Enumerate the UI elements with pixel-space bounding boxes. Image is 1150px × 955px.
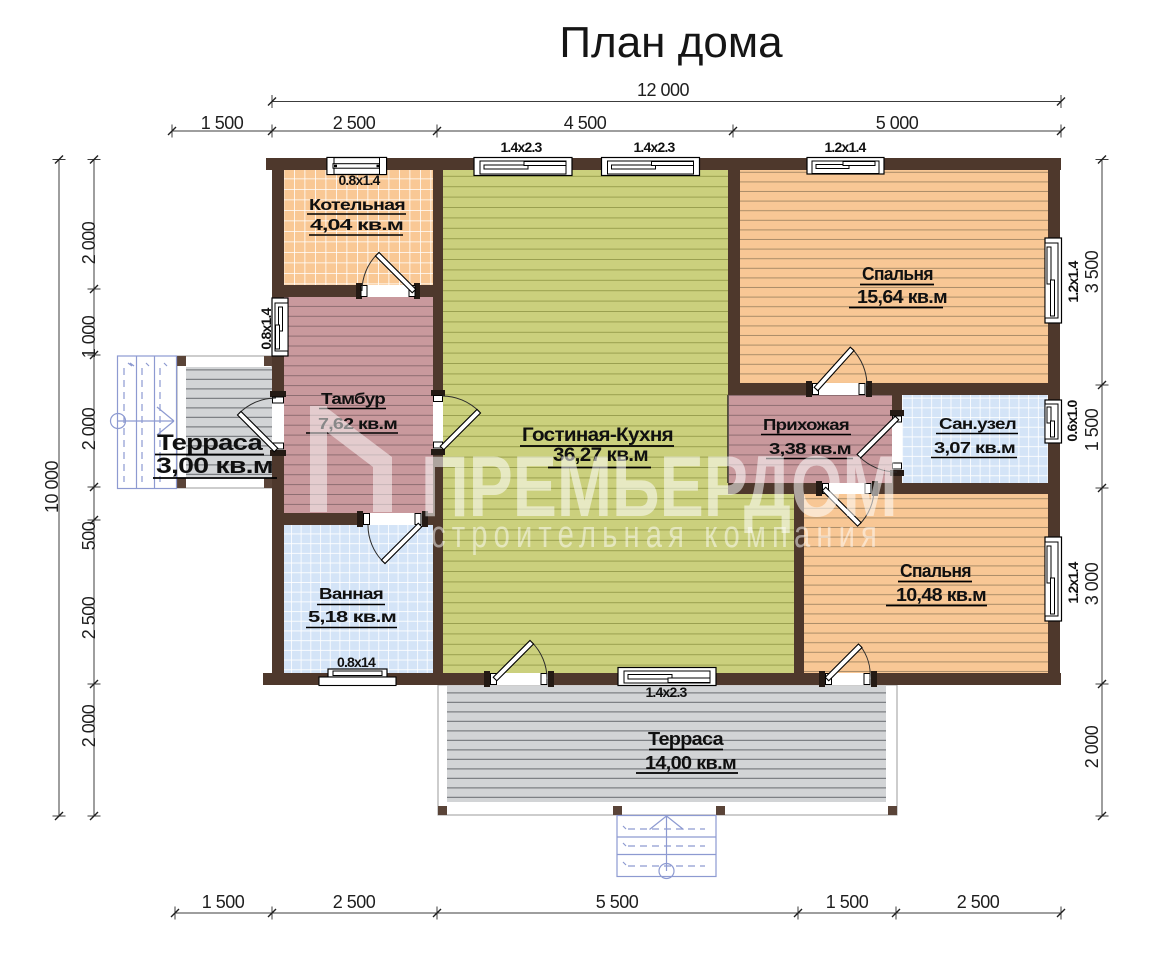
svg-text:2 500: 2 500 [79,596,99,639]
svg-text:строительная компания: строительная компания [431,514,883,556]
svg-text:Спальня: Спальня [862,264,933,284]
svg-text:0.8x14: 0.8x14 [337,654,376,670]
svg-text:10,48 кв.м: 10,48 кв.м [896,585,986,605]
svg-text:1 000: 1 000 [79,315,99,358]
svg-text:2 000: 2 000 [79,407,99,450]
svg-text:10 000: 10 000 [42,460,62,513]
svg-text:3 500: 3 500 [1082,250,1102,293]
svg-text:3,07 кв.м: 3,07 кв.м [934,440,1015,457]
svg-text:План дома: План дома [559,18,783,67]
svg-text:3 000: 3 000 [1082,562,1102,605]
svg-text:15,64 кв.м: 15,64 кв.м [857,287,947,307]
svg-text:Ванная: Ванная [319,586,383,603]
svg-text:0.8x1.4: 0.8x1.4 [338,172,380,188]
svg-text:5,18 кв.м: 5,18 кв.м [308,609,396,626]
svg-text:1 500: 1 500 [201,113,244,133]
svg-text:2 500: 2 500 [957,892,1000,912]
svg-text:2 000: 2 000 [79,221,99,264]
svg-text:1.4x2.3: 1.4x2.3 [633,139,675,155]
svg-text:2 000: 2 000 [1082,725,1102,768]
svg-text:1.2x1.4: 1.2x1.4 [1065,561,1081,603]
svg-text:1 500: 1 500 [826,892,869,912]
svg-text:Прихожая: Прихожая [763,417,849,434]
svg-text:1.4x2.3: 1.4x2.3 [500,139,542,155]
svg-text:3,00 кв.м: 3,00 кв.м [156,453,273,478]
svg-text:2 500: 2 500 [333,113,376,133]
svg-text:1.4x2.3: 1.4x2.3 [645,684,687,700]
svg-text:4,04 кв.м: 4,04 кв.м [310,217,403,234]
svg-text:5 000: 5 000 [876,113,919,133]
svg-text:1 500: 1 500 [1082,408,1102,451]
svg-text:4 500: 4 500 [564,113,607,133]
svg-text:500: 500 [79,521,99,550]
svg-text:Терраса: Терраса [157,430,264,455]
svg-text:Терраса: Терраса [648,729,725,749]
svg-text:1 500: 1 500 [202,892,245,912]
svg-text:Тамбур: Тамбур [321,391,386,408]
svg-text:1.2x1.4: 1.2x1.4 [1065,260,1081,302]
svg-text:12 000: 12 000 [637,80,690,100]
svg-text:5 500: 5 500 [596,892,639,912]
svg-text:Спальня: Спальня [900,561,971,581]
svg-text:14,00 кв.м: 14,00 кв.м [645,753,736,773]
svg-text:1.2x1.4: 1.2x1.4 [824,139,866,155]
svg-text:Котельная: Котельная [309,197,405,214]
svg-text:Сан.узел: Сан.узел [939,416,1017,433]
svg-text:2 000: 2 000 [79,704,99,747]
svg-text:0.6x1.0: 0.6x1.0 [1064,399,1080,441]
svg-text:2 500: 2 500 [333,892,376,912]
svg-text:0.8х1.4: 0.8х1.4 [258,307,274,349]
